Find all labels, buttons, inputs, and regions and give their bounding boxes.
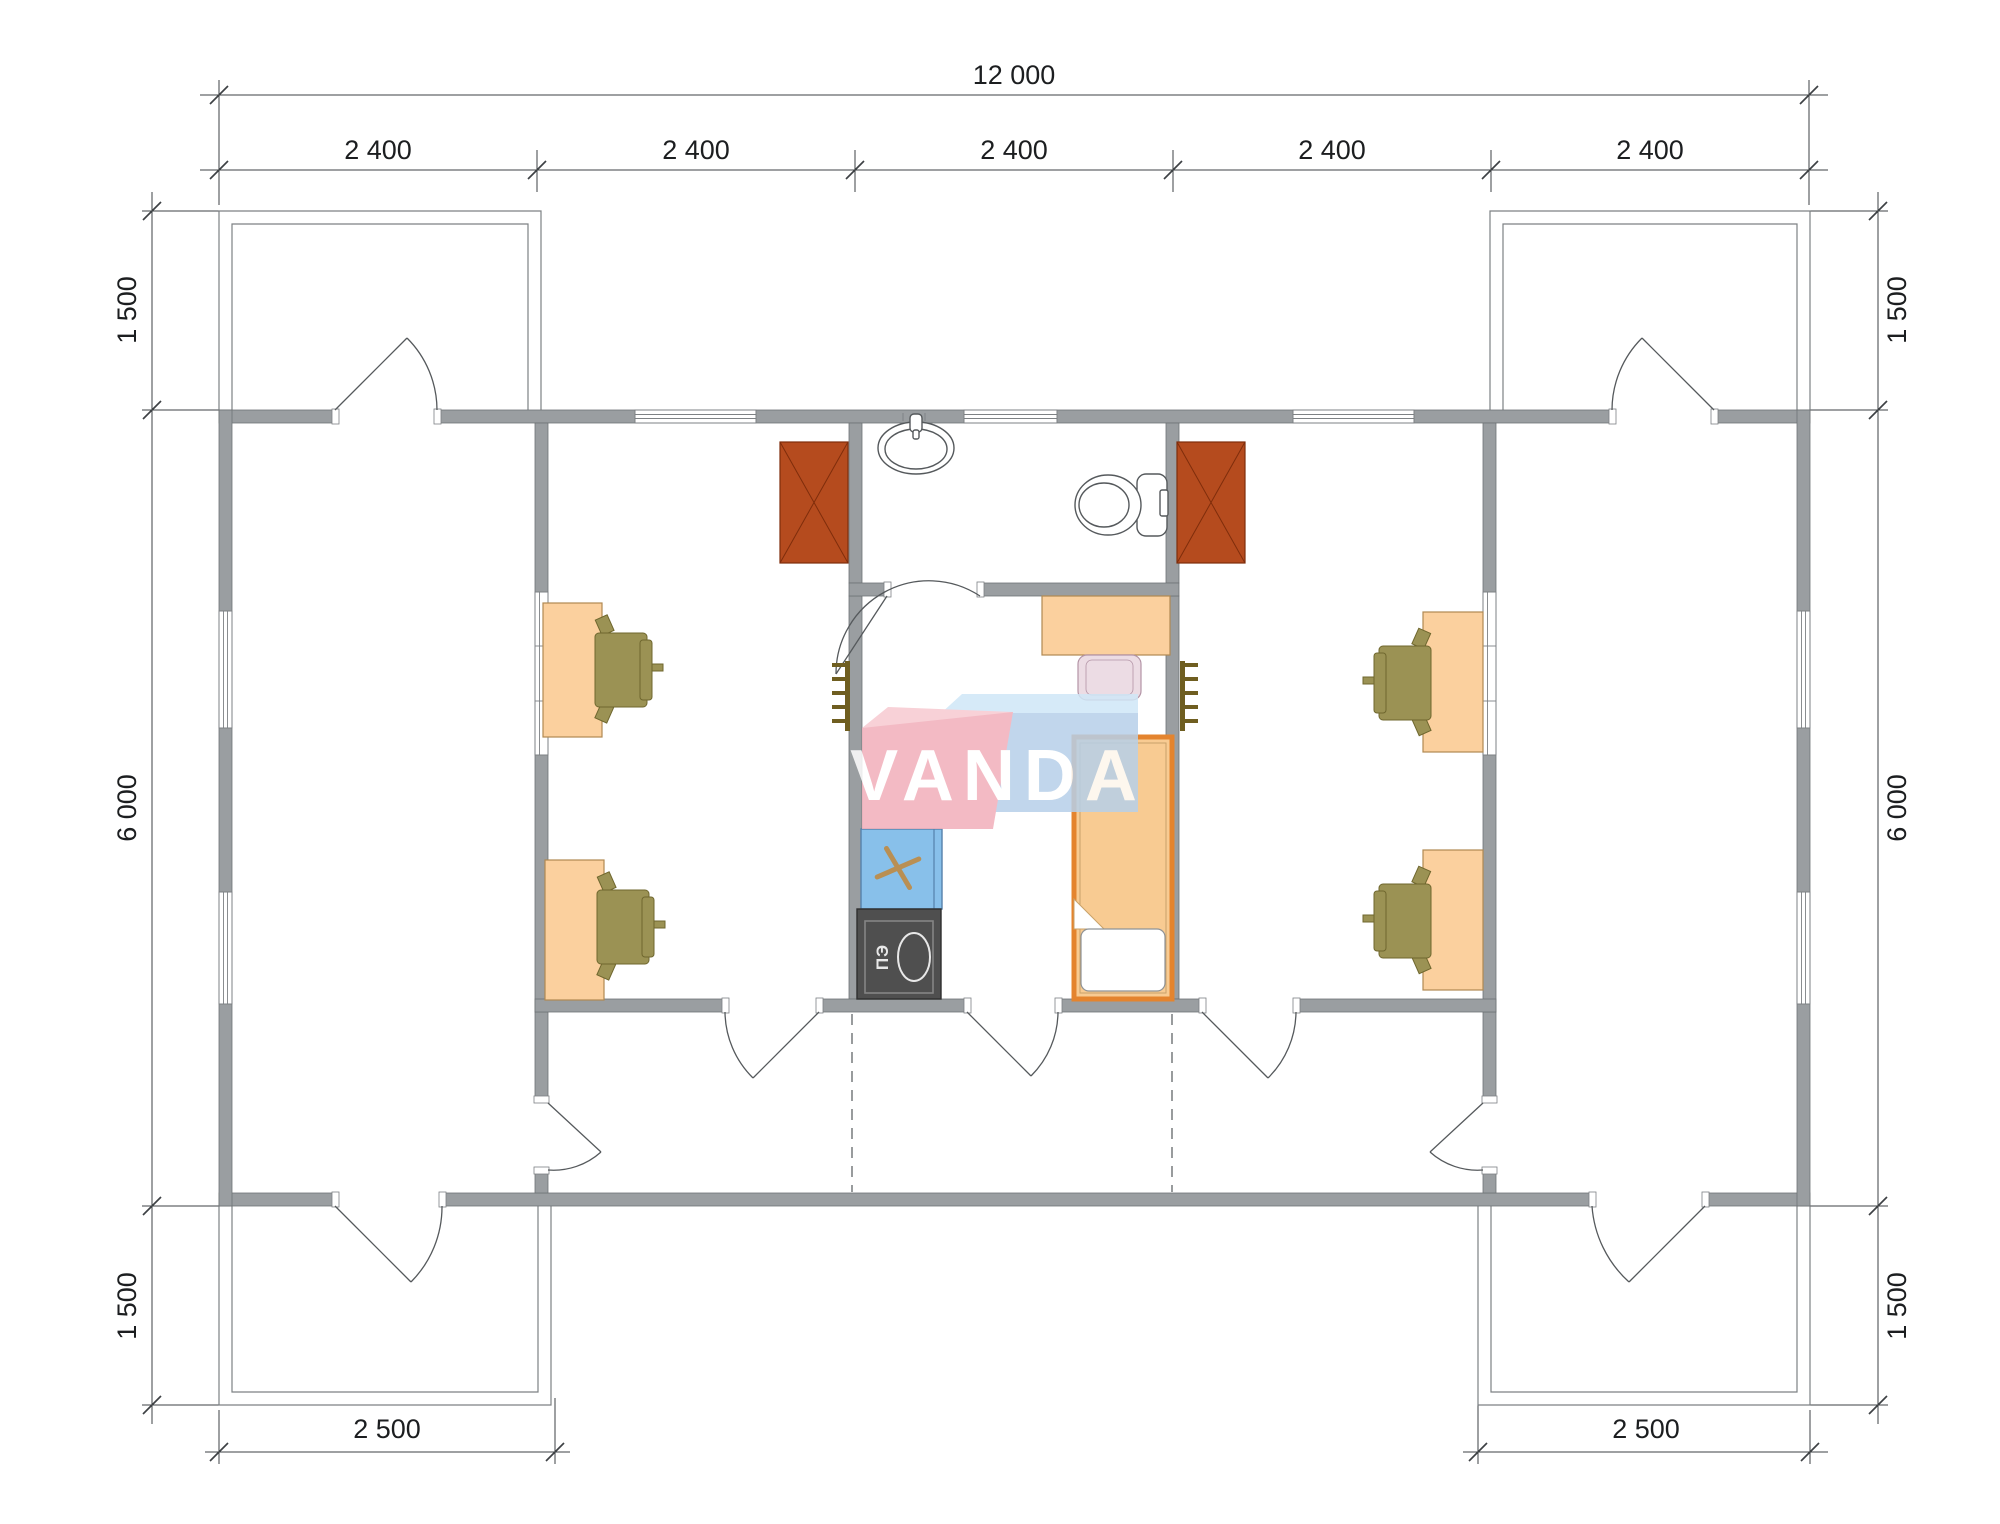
- dimensions-bottom: 2 500 2 500: [205, 1398, 1828, 1464]
- door: [548, 1103, 601, 1170]
- hallway-dashed-lines: [852, 1014, 1172, 1192]
- dimension-label: 2 500: [1612, 1414, 1680, 1444]
- dimension-label: 6 000: [112, 774, 142, 842]
- dimension-label: 1 500: [1882, 1272, 1912, 1340]
- floor-plan-drawing: 12 000 2 400 2 400 2 400 2 400 2 400 1 5…: [0, 0, 2000, 1524]
- window: [219, 892, 232, 1004]
- office-chair: [595, 615, 663, 723]
- dimension-label: 2 400: [344, 135, 412, 165]
- dimension-label: 12 000: [973, 60, 1056, 90]
- logo-text: VANDA: [850, 736, 1146, 816]
- door: [967, 1012, 1058, 1076]
- door: [725, 1012, 819, 1078]
- window: [1483, 592, 1496, 755]
- desk: [1423, 850, 1483, 990]
- desk: [1042, 596, 1170, 655]
- desk: [543, 603, 602, 737]
- desk: [1423, 612, 1483, 752]
- floor-plan-page: 12 000 2 400 2 400 2 400 2 400 2 400 1 5…: [0, 0, 2000, 1524]
- electric-stove: ПЭ: [857, 909, 941, 999]
- porch-bottom-left: [219, 1206, 551, 1405]
- radiator: [832, 661, 850, 731]
- vanda-logo: VANDA: [850, 694, 1146, 829]
- porch-top-left: [219, 211, 541, 410]
- window: [964, 410, 1057, 423]
- dimensions-left: 1 500 6 000 1 500: [112, 192, 230, 1424]
- window: [1797, 892, 1810, 1004]
- stove-label: ПЭ: [873, 944, 892, 970]
- dimension-label: 6 000: [1882, 774, 1912, 842]
- dimension-label: 2 400: [1616, 135, 1684, 165]
- dimension-label: 2 400: [662, 135, 730, 165]
- office-chair: [1363, 628, 1431, 735]
- dimension-label: 1 500: [112, 276, 142, 344]
- dimension-label: 2 400: [1298, 135, 1366, 165]
- pillow: [1081, 929, 1165, 991]
- desk: [545, 860, 604, 1000]
- wardrobe: [780, 442, 848, 563]
- dimensions-right: 1 500 6 000 1 500: [1800, 192, 1912, 1424]
- door: [335, 338, 437, 410]
- dimension-label: 1 500: [112, 1272, 142, 1340]
- window: [219, 611, 232, 728]
- wardrobe: [1177, 442, 1245, 563]
- porch-top-right: [1490, 211, 1810, 410]
- porch-bottom-right: [1478, 1206, 1810, 1405]
- office-chair: [1363, 866, 1431, 973]
- door: [1430, 1103, 1483, 1170]
- bathroom-fixtures: [878, 413, 1168, 536]
- dimension-label: 1 500: [1882, 276, 1912, 344]
- door: [1612, 338, 1714, 410]
- door: [1592, 1206, 1705, 1282]
- chair: [1078, 655, 1141, 700]
- dimensions-top: 12 000 2 400 2 400 2 400 2 400 2 400: [200, 60, 1828, 205]
- window: [635, 410, 756, 423]
- door: [1202, 1012, 1296, 1078]
- radiator: [1180, 661, 1198, 731]
- office-chair: [597, 872, 665, 980]
- window: [1797, 611, 1810, 728]
- toilet: [1075, 474, 1168, 536]
- kitchen-counter: [861, 829, 942, 909]
- bedroom-b-furniture: [543, 442, 850, 1000]
- dimension-label: 2 500: [353, 1414, 421, 1444]
- door: [335, 1206, 442, 1282]
- bedroom-c-furniture: [1177, 442, 1483, 990]
- window: [1293, 410, 1414, 423]
- dimension-label: 2 400: [980, 135, 1048, 165]
